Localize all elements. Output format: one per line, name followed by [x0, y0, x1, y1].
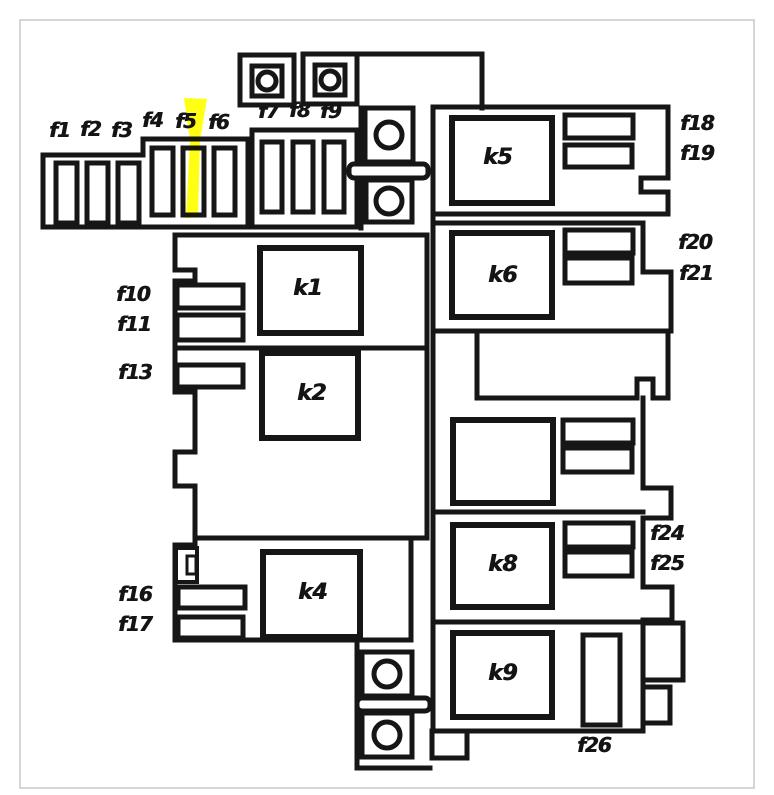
mounting-hole-top-left-icon	[258, 72, 276, 90]
label-f4: f4	[142, 110, 163, 130]
fuse-slot-f19	[565, 145, 632, 167]
label-f8: f8	[289, 100, 310, 120]
fuse-slot-f6	[214, 148, 235, 215]
label-f1: f1	[49, 120, 70, 140]
fuse-box-diagram: f1 f2 f3 f4 f5 f6 f7 f8 f9 f10 f11 f13 f…	[0, 0, 774, 795]
fuse-slot-mid-1	[563, 420, 633, 443]
relay-unlabeled	[453, 420, 553, 503]
stud-hole-bottom-2-icon	[374, 722, 400, 748]
label-f5: f5	[175, 111, 196, 131]
bottom-left-tab	[432, 731, 467, 758]
label-f16: f16	[118, 584, 152, 604]
fuse-slot-f21	[565, 258, 632, 283]
fuse-slot-mid-2	[563, 448, 632, 472]
stud-hole-bottom-1-icon	[374, 661, 400, 687]
fuse-slot-f1	[56, 163, 77, 223]
label-f20: f20	[678, 232, 712, 252]
label-f19: f19	[680, 143, 714, 163]
label-k9: k9	[488, 664, 517, 684]
label-k5: k5	[483, 148, 512, 168]
right-tab-2	[643, 687, 670, 723]
fuse-slot-f25	[565, 552, 632, 576]
fuse-slot-f3	[118, 163, 139, 223]
fuse-slot-f13	[177, 365, 243, 387]
label-k1: k1	[293, 279, 322, 299]
fuse-slot-f17	[178, 617, 243, 638]
label-f26: f26	[577, 735, 611, 755]
label-f21: f21	[679, 263, 713, 283]
label-f10: f10	[116, 284, 150, 304]
top-connector-outline	[357, 54, 482, 108]
stud-hole-top-2-icon	[376, 188, 402, 214]
label-f9: f9	[320, 101, 341, 121]
label-f2: f2	[80, 119, 101, 139]
fuse-slot-f7	[262, 142, 282, 212]
label-k4: k4	[298, 583, 327, 603]
fuse-slot-f20	[565, 230, 633, 253]
stud-bar-top	[349, 164, 428, 178]
fuse-slot-f16	[178, 587, 245, 608]
right-tab-1	[643, 623, 683, 680]
fuse-slot-f10	[177, 285, 243, 308]
label-k6: k6	[488, 266, 517, 286]
fuse-slot-f4	[152, 148, 173, 215]
label-f3: f3	[111, 120, 132, 140]
k6-section-right-edge	[643, 223, 671, 331]
fuse-slot-f9	[324, 142, 344, 212]
fuse-slot-f8	[293, 142, 313, 212]
fuse-slot-f26	[583, 635, 620, 725]
stud-bar-bottom	[357, 698, 430, 711]
fuse-slot-f2	[87, 163, 108, 223]
label-k2: k2	[297, 384, 326, 404]
label-f6: f6	[208, 112, 229, 132]
label-f24: f24	[650, 523, 684, 543]
label-f11: f11	[117, 314, 151, 334]
mounting-hole-top-right-icon	[321, 71, 339, 89]
label-f25: f25	[650, 553, 684, 573]
label-f13: f13	[118, 362, 152, 382]
clip-bar	[187, 556, 196, 574]
k5-section-right-edge	[641, 107, 668, 214]
label-k8: k8	[488, 555, 517, 575]
fuse-slot-f11	[177, 315, 243, 340]
mid-bracket-outline	[477, 334, 668, 398]
label-f17: f17	[118, 614, 152, 634]
label-f7: f7	[258, 101, 279, 121]
fuse-slot-f18	[565, 115, 633, 138]
fuse-slot-f24	[565, 523, 633, 547]
stud-hole-top-1-icon	[376, 122, 402, 148]
label-f18: f18	[680, 113, 714, 133]
